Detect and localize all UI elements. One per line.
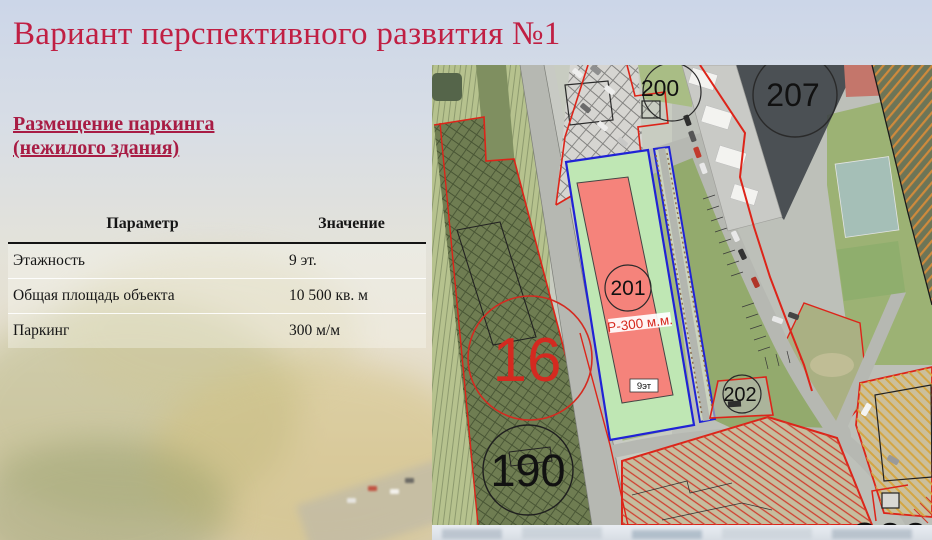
parcel-202: 202 (710, 375, 773, 418)
subtitle-line-2: (нежилого здания) (13, 137, 179, 159)
background-trees-blob (0, 440, 230, 540)
building-201-label: 201 (610, 277, 645, 300)
parcel-190-label: 190 (490, 445, 565, 496)
value-cell: 300 м/м (277, 314, 426, 349)
value-cell: 10 500 кв. м (277, 279, 426, 314)
parcel-202-label: 202 (723, 384, 756, 406)
section-subtitle: Размещение паркинга (нежилого здания) (13, 112, 214, 161)
photo-city-strip (432, 525, 932, 540)
table-header-row: Параметр Значение (8, 208, 426, 243)
cadastral-map: 201 Р-300 м.м. 9эт 202 (432, 65, 932, 525)
table-row: Общая площадь объекта 10 500 кв. м (8, 279, 426, 314)
value-cell: 9 эт. (277, 243, 426, 279)
param-cell: Этажность (8, 243, 277, 279)
background-car (347, 498, 356, 503)
page-title: Вариант перспективного развития №1 (13, 16, 893, 53)
background-car (390, 489, 399, 494)
parcel-bottom-label: 200 (852, 513, 929, 525)
table-row: Паркинг 300 м/м (8, 314, 426, 349)
parameters-table: Параметр Значение Этажность 9 эт. Общая … (8, 208, 426, 348)
background-car (405, 478, 414, 483)
subtitle-line-1: Размещение паркинга (13, 113, 214, 135)
sports-field (837, 241, 906, 301)
param-cell: Общая площадь объекта (8, 279, 277, 314)
param-cell: Паркинг (8, 314, 277, 349)
small-building-outline (882, 493, 899, 508)
column-header-parameter: Параметр (8, 208, 277, 243)
dry-grass-patch (810, 353, 854, 377)
floors-label: 9эт (637, 381, 652, 392)
utility-square-outline (642, 101, 660, 118)
table-row: Этажность 9 эт. (8, 243, 426, 279)
tree-blob (432, 73, 462, 101)
column-header-value: Значение (277, 208, 426, 243)
parcel-16-label: 16 (493, 326, 562, 395)
parcel-200-label: 200 (641, 75, 679, 101)
sports-court (835, 157, 899, 238)
background-car (368, 486, 377, 491)
cadastral-map-svg: 201 Р-300 м.м. 9эт 202 (432, 65, 932, 525)
parcel-207-label: 207 (766, 77, 819, 113)
slide: Вариант перспективного развития №1 Разме… (0, 0, 932, 540)
